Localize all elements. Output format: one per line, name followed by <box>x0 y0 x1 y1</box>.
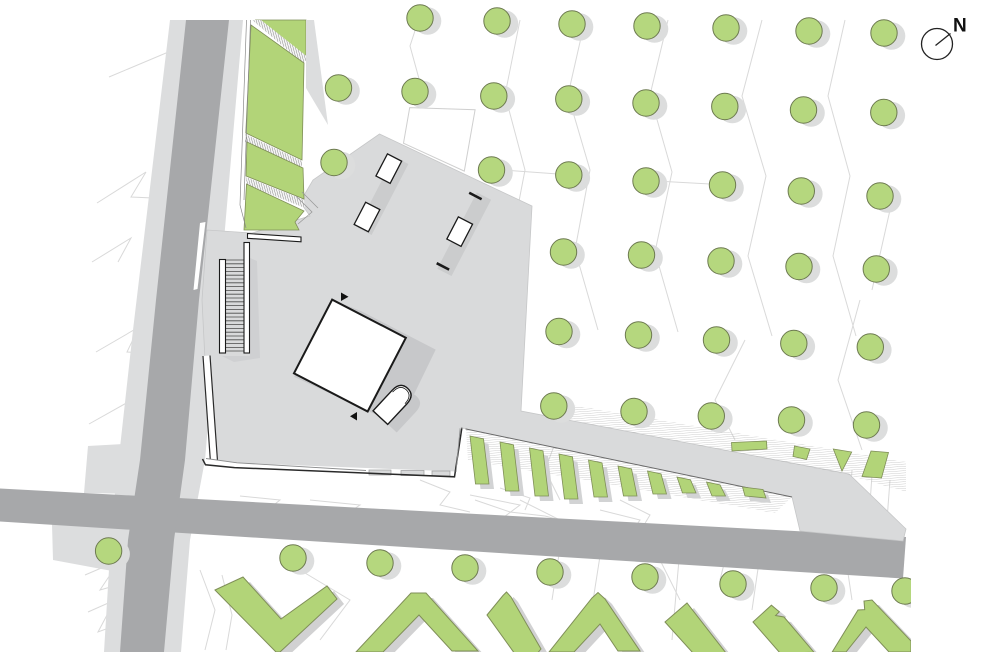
svg-text:N: N <box>953 16 967 37</box>
